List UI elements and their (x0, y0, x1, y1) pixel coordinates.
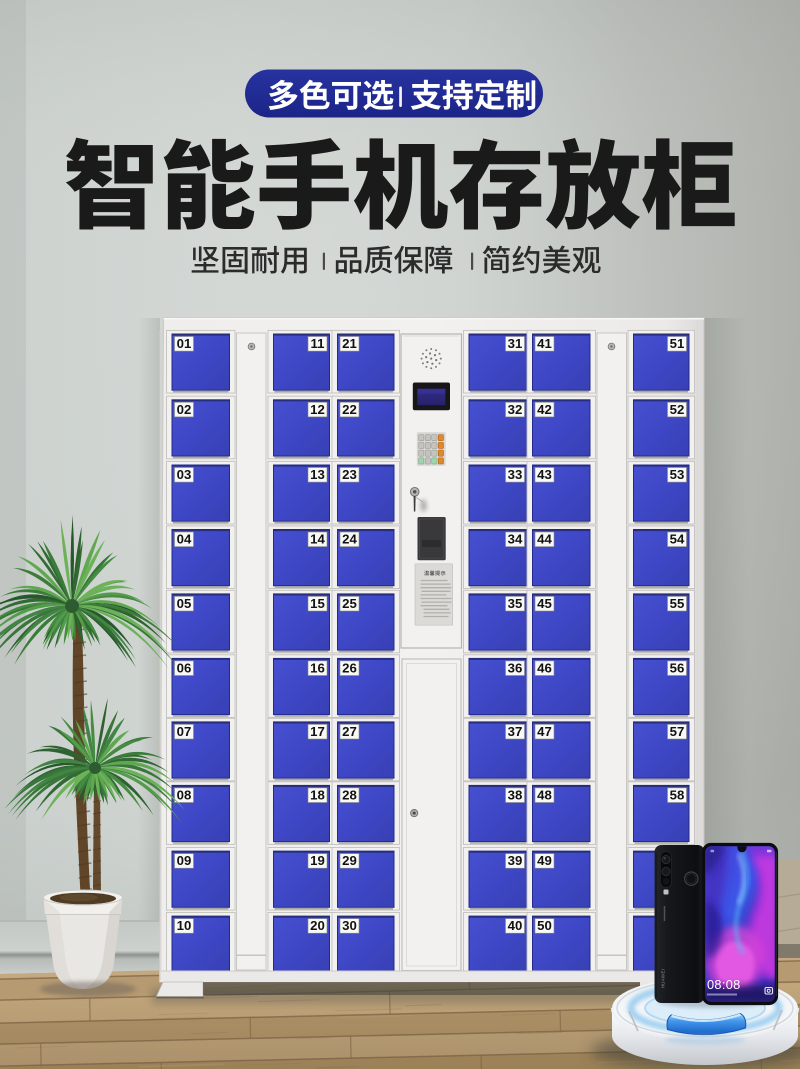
svg-text:07: 07 (177, 724, 192, 739)
svg-text:HUAWEI: HUAWEI (661, 969, 666, 989)
svg-text:06: 06 (177, 661, 192, 676)
svg-text:40: 40 (508, 918, 523, 933)
svg-text:21: 21 (342, 336, 357, 351)
svg-text:10: 10 (177, 918, 192, 933)
svg-text:14: 14 (310, 532, 325, 547)
svg-text:27: 27 (342, 724, 357, 739)
svg-text:18: 18 (310, 788, 325, 803)
svg-text:33: 33 (508, 467, 523, 482)
svg-text:37: 37 (508, 724, 523, 739)
svg-text:48: 48 (537, 788, 552, 803)
svg-text:44: 44 (537, 532, 552, 547)
svg-text:29: 29 (342, 853, 357, 868)
svg-text:05: 05 (177, 596, 192, 611)
svg-text:17: 17 (310, 724, 325, 739)
svg-text:56: 56 (670, 661, 685, 676)
svg-text:58: 58 (670, 788, 685, 803)
svg-text:22: 22 (342, 402, 357, 417)
svg-text:15: 15 (310, 596, 325, 611)
svg-text:45: 45 (537, 596, 552, 611)
svg-text:04: 04 (177, 532, 192, 547)
svg-text:51: 51 (670, 336, 685, 351)
svg-text:42: 42 (537, 402, 552, 417)
svg-text:28: 28 (342, 788, 357, 803)
svg-text:57: 57 (670, 724, 685, 739)
svg-text:34: 34 (508, 532, 523, 547)
svg-text:49: 49 (537, 853, 552, 868)
svg-text:55: 55 (670, 596, 685, 611)
svg-text:38: 38 (508, 788, 523, 803)
svg-text:25: 25 (342, 596, 357, 611)
svg-text:03: 03 (177, 467, 192, 482)
svg-text:53: 53 (670, 467, 685, 482)
svg-text:39: 39 (508, 853, 523, 868)
svg-text:43: 43 (537, 467, 552, 482)
svg-text:20: 20 (310, 918, 325, 933)
svg-text:16: 16 (310, 661, 325, 676)
svg-text:23: 23 (342, 467, 357, 482)
svg-text:09: 09 (177, 853, 192, 868)
svg-text:31: 31 (508, 336, 523, 351)
svg-text:08:08: 08:08 (707, 977, 741, 992)
svg-text:32: 32 (508, 402, 523, 417)
svg-text:19: 19 (310, 853, 325, 868)
svg-text:01: 01 (177, 336, 192, 351)
svg-text:08: 08 (177, 788, 192, 803)
svg-text:46: 46 (537, 661, 552, 676)
svg-text:02: 02 (177, 402, 192, 417)
svg-text:24: 24 (342, 532, 357, 547)
svg-text:11: 11 (311, 336, 325, 351)
svg-text:52: 52 (670, 402, 685, 417)
svg-text:35: 35 (508, 596, 523, 611)
svg-text:36: 36 (508, 661, 523, 676)
svg-text:50: 50 (537, 918, 552, 933)
svg-text:26: 26 (342, 661, 357, 676)
svg-text:12: 12 (310, 402, 325, 417)
svg-text:30: 30 (342, 918, 357, 933)
svg-text:41: 41 (537, 336, 552, 351)
svg-text:47: 47 (537, 724, 552, 739)
svg-text:13: 13 (310, 467, 325, 482)
svg-text:54: 54 (670, 532, 685, 547)
